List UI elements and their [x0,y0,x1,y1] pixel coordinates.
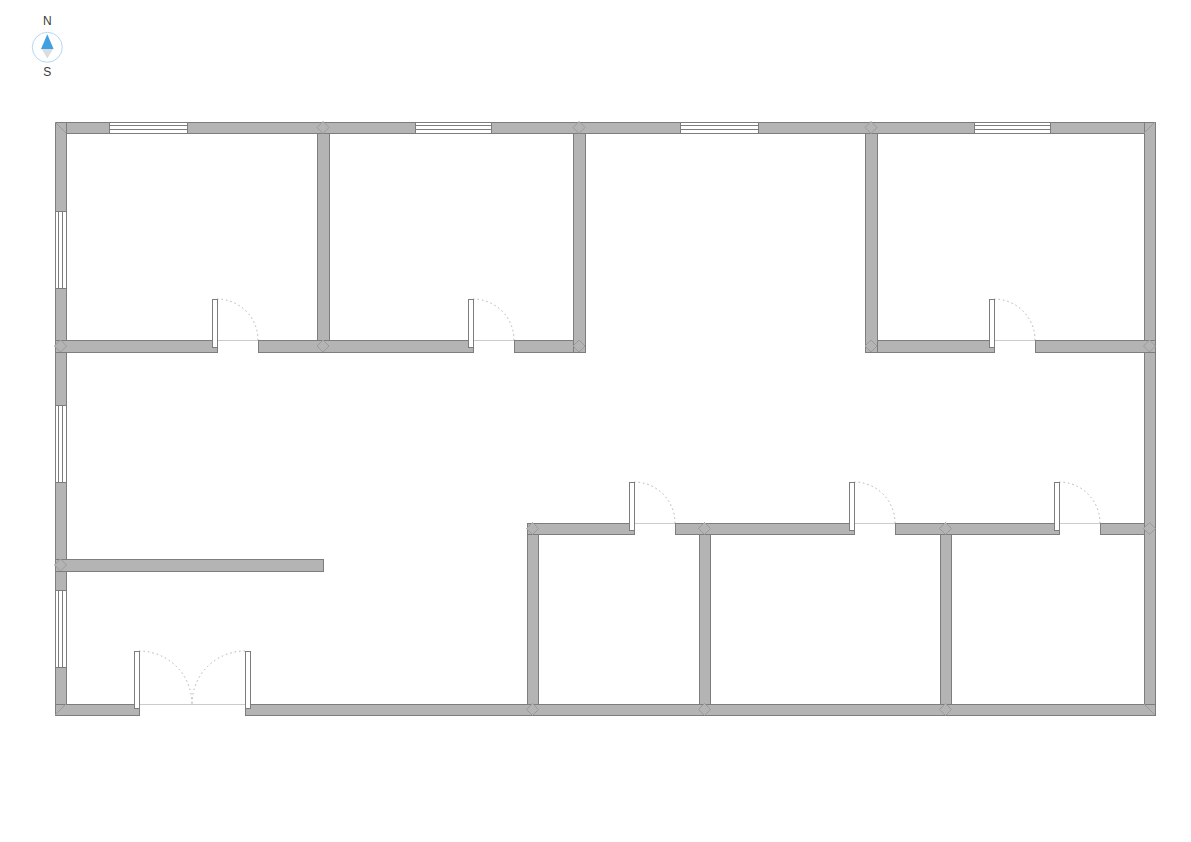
door-room6-swing-arc [854,482,895,523]
compass-rose: N S [22,10,74,80]
floor-plan-canvas: N S [0,0,1191,842]
divider-room6-room7 [940,534,951,704]
partition-lower-3 [895,523,1059,534]
outer-wall-south-west-segment [55,704,139,715]
door-room7 [1054,482,1059,530]
door-room5 [629,482,634,530]
entrance-door-right-leaf-swing-arc [192,651,245,704]
compass-south-label: S [43,65,51,79]
door-room2-swing-arc [473,299,514,340]
entrance-door-right-leaf [245,651,250,708]
window-north-2 [415,122,491,133]
divider-room5-west [527,534,538,704]
divider-room5-room6 [699,534,710,704]
divider-room2-hall [573,133,585,352]
partition-upper-east-2 [1035,340,1155,352]
window-north-1 [109,122,187,133]
partition-upper-west-1 [55,340,217,352]
partition-lower-4 [1100,523,1144,534]
compass-needle-south-icon [42,49,53,59]
door-room4-swing-arc [994,299,1035,340]
compass-north-label: N [43,14,52,28]
window-west-1 [55,211,66,288]
window-west-3 [55,590,66,667]
window-north-4 [974,122,1050,133]
partition-upper-east-1 [865,340,994,352]
door-room1 [212,299,217,347]
divider-room1-room2 [317,133,329,340]
door-room7-swing-arc [1059,482,1100,523]
door-room5-swing-arc [634,482,675,523]
door-room1-swing-arc [217,299,258,340]
entrance-door-left-leaf-swing-arc [139,651,192,704]
partition-lower-1 [527,523,634,534]
door-room2 [468,299,473,347]
partition-upper-west-2 [258,340,473,352]
door-room6 [849,482,854,530]
compass-needle-north-icon [41,34,54,49]
door-room4 [989,299,994,347]
outer-wall-east [1144,122,1155,715]
window-north-3 [680,122,758,133]
entrance-door-left-leaf [134,651,139,708]
window-west-2 [55,405,66,482]
divider-hall-room4 [865,133,877,352]
floor-plan [0,0,1191,842]
stub-wall-west [55,559,323,571]
